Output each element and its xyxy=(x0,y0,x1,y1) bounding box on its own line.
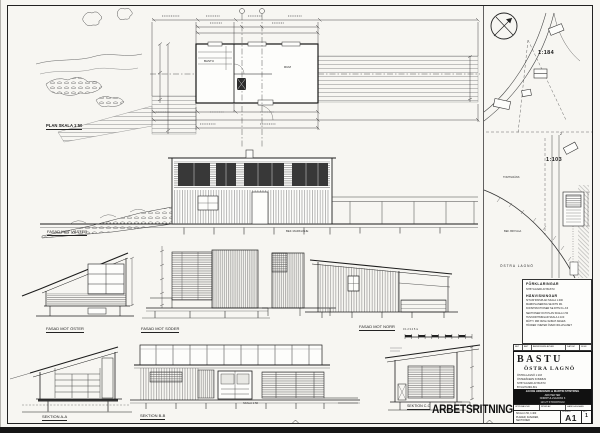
note-skala-bb: SKALA 1:50 xyxy=(243,402,258,405)
section-aa xyxy=(10,347,132,412)
legend-forklaring-line: NYBYGGNAD AV BASTU xyxy=(526,288,588,292)
legend-line: HÖJDER I METER ÖVER NOLLPLANET xyxy=(526,324,588,328)
field-handlaggare: HANDLÄGGARE xyxy=(566,405,591,410)
parcel-number-lower: 1:103 xyxy=(546,158,562,164)
rev-col-datum: DATUM xyxy=(566,345,580,350)
field-ritad: RITAD AV xyxy=(540,405,566,410)
rev-col-ant: ANT xyxy=(523,345,532,350)
project-title: BASTU xyxy=(517,354,588,365)
section-bb xyxy=(130,345,360,409)
title-block-header: BASTU ÖSTRA LAGNÖ ÖSTRA LAGNÖ 1:103 ÖSTE… xyxy=(514,352,591,389)
revision-cell: BET 1 xyxy=(581,411,591,423)
project-location: ÖSTRA LAGNÖ xyxy=(524,366,588,372)
drawing-number: A1 xyxy=(561,413,581,423)
scan-edge-left xyxy=(0,0,1,433)
east-elevation xyxy=(22,253,134,316)
title-block: BASTU ÖSTRA LAGNÖ ÖSTRA LAGNÖ 1:103 ÖSTE… xyxy=(513,351,592,424)
rev-col-andringen: ÄNDRINGEN AVSER xyxy=(532,345,566,350)
title-block-bottom: SKALA 1:50, 1:400 PLANER, FASADER, SEKTI… xyxy=(514,411,591,423)
revision-strip: BET ANT ÄNDRINGEN AVSER DATUM SIGN xyxy=(513,344,592,351)
plan-room-label-bastu: BASTU xyxy=(204,60,214,63)
legend-title-forklaringar: FÖRKLARINGAR xyxy=(526,282,588,286)
drawing-description: SKALA 1:50, 1:400 PLANER, FASADER, SEKTI… xyxy=(514,411,560,423)
north-elevation xyxy=(305,260,458,318)
label-sektion-aa: SEKTION A-A xyxy=(42,415,67,421)
scan-edge-bottom xyxy=(0,427,600,433)
plan-label: PLAN SKALA 1:50 xyxy=(46,124,82,130)
scale-bar-numbers: 0 1 2 3 4 5 m xyxy=(403,329,418,332)
legend-box: FÖRKLARINGAR NYBYGGNAD AV BASTU HÄNVISNI… xyxy=(522,279,592,344)
revision-letter: 1 xyxy=(582,413,591,419)
site-plan-lower xyxy=(484,135,590,278)
drawing-number-cell: NUMMER A1 xyxy=(560,411,581,423)
floor-plan xyxy=(36,8,480,148)
label-fasad-oster: FASAD MOT ÖSTER xyxy=(46,327,84,333)
note-tomtgrans: TOMTGRÄNS xyxy=(503,177,520,180)
label-fasad-vaster: FASAD MOT VÄSTER xyxy=(47,230,87,236)
architect-band: JACOB HIDEMARK & MARTIN STINTZING ARKITE… xyxy=(514,389,591,404)
label-fasad-soder: FASAD MOT SÖDER xyxy=(141,327,179,333)
site-marker: 2 xyxy=(560,133,562,137)
note-marklinje: BEF. MARKLINJE xyxy=(286,230,308,233)
parcel-number-upper: 1:184 xyxy=(538,51,554,57)
rev-col-bet: BET xyxy=(514,345,523,350)
label-fasad-norr: FASAD MOT NORR xyxy=(359,325,395,331)
arbetsritning-stamp: ARBETSRITNING xyxy=(432,404,513,416)
title-block-fields: UPPDRAG NR RITAD AV HANDLÄGGARE xyxy=(514,404,591,411)
plan-room-label-rum: RUM xyxy=(284,66,291,69)
south-elevation xyxy=(142,246,336,318)
legend-title-hanvisningar: HÄNVISNINGAR xyxy=(526,294,588,298)
scale-bar xyxy=(405,334,472,339)
note-brygga: BEF. BRYGGA xyxy=(504,231,521,234)
rev-col-sign: SIGN xyxy=(580,345,591,350)
north-arrow-icon xyxy=(491,13,517,39)
west-elevation xyxy=(40,150,478,238)
drawing-content-line: SEKTIONER xyxy=(516,419,560,423)
label-sektion-cc: SEKTION C-C xyxy=(407,405,430,410)
site-area-label: ÖSTRA LAGNÖ xyxy=(500,265,534,268)
site-plan-upper xyxy=(484,13,592,133)
section-cc xyxy=(385,345,481,410)
drawing-linework xyxy=(0,0,600,433)
drawing-sheet: PLAN SKALA 1:50 BASTU RUM FASAD MOT VÄST… xyxy=(0,0,600,433)
field-uppdrag: UPPDRAG NR xyxy=(514,405,540,410)
label-sektion-bb: SEKTION B-B xyxy=(140,414,165,420)
